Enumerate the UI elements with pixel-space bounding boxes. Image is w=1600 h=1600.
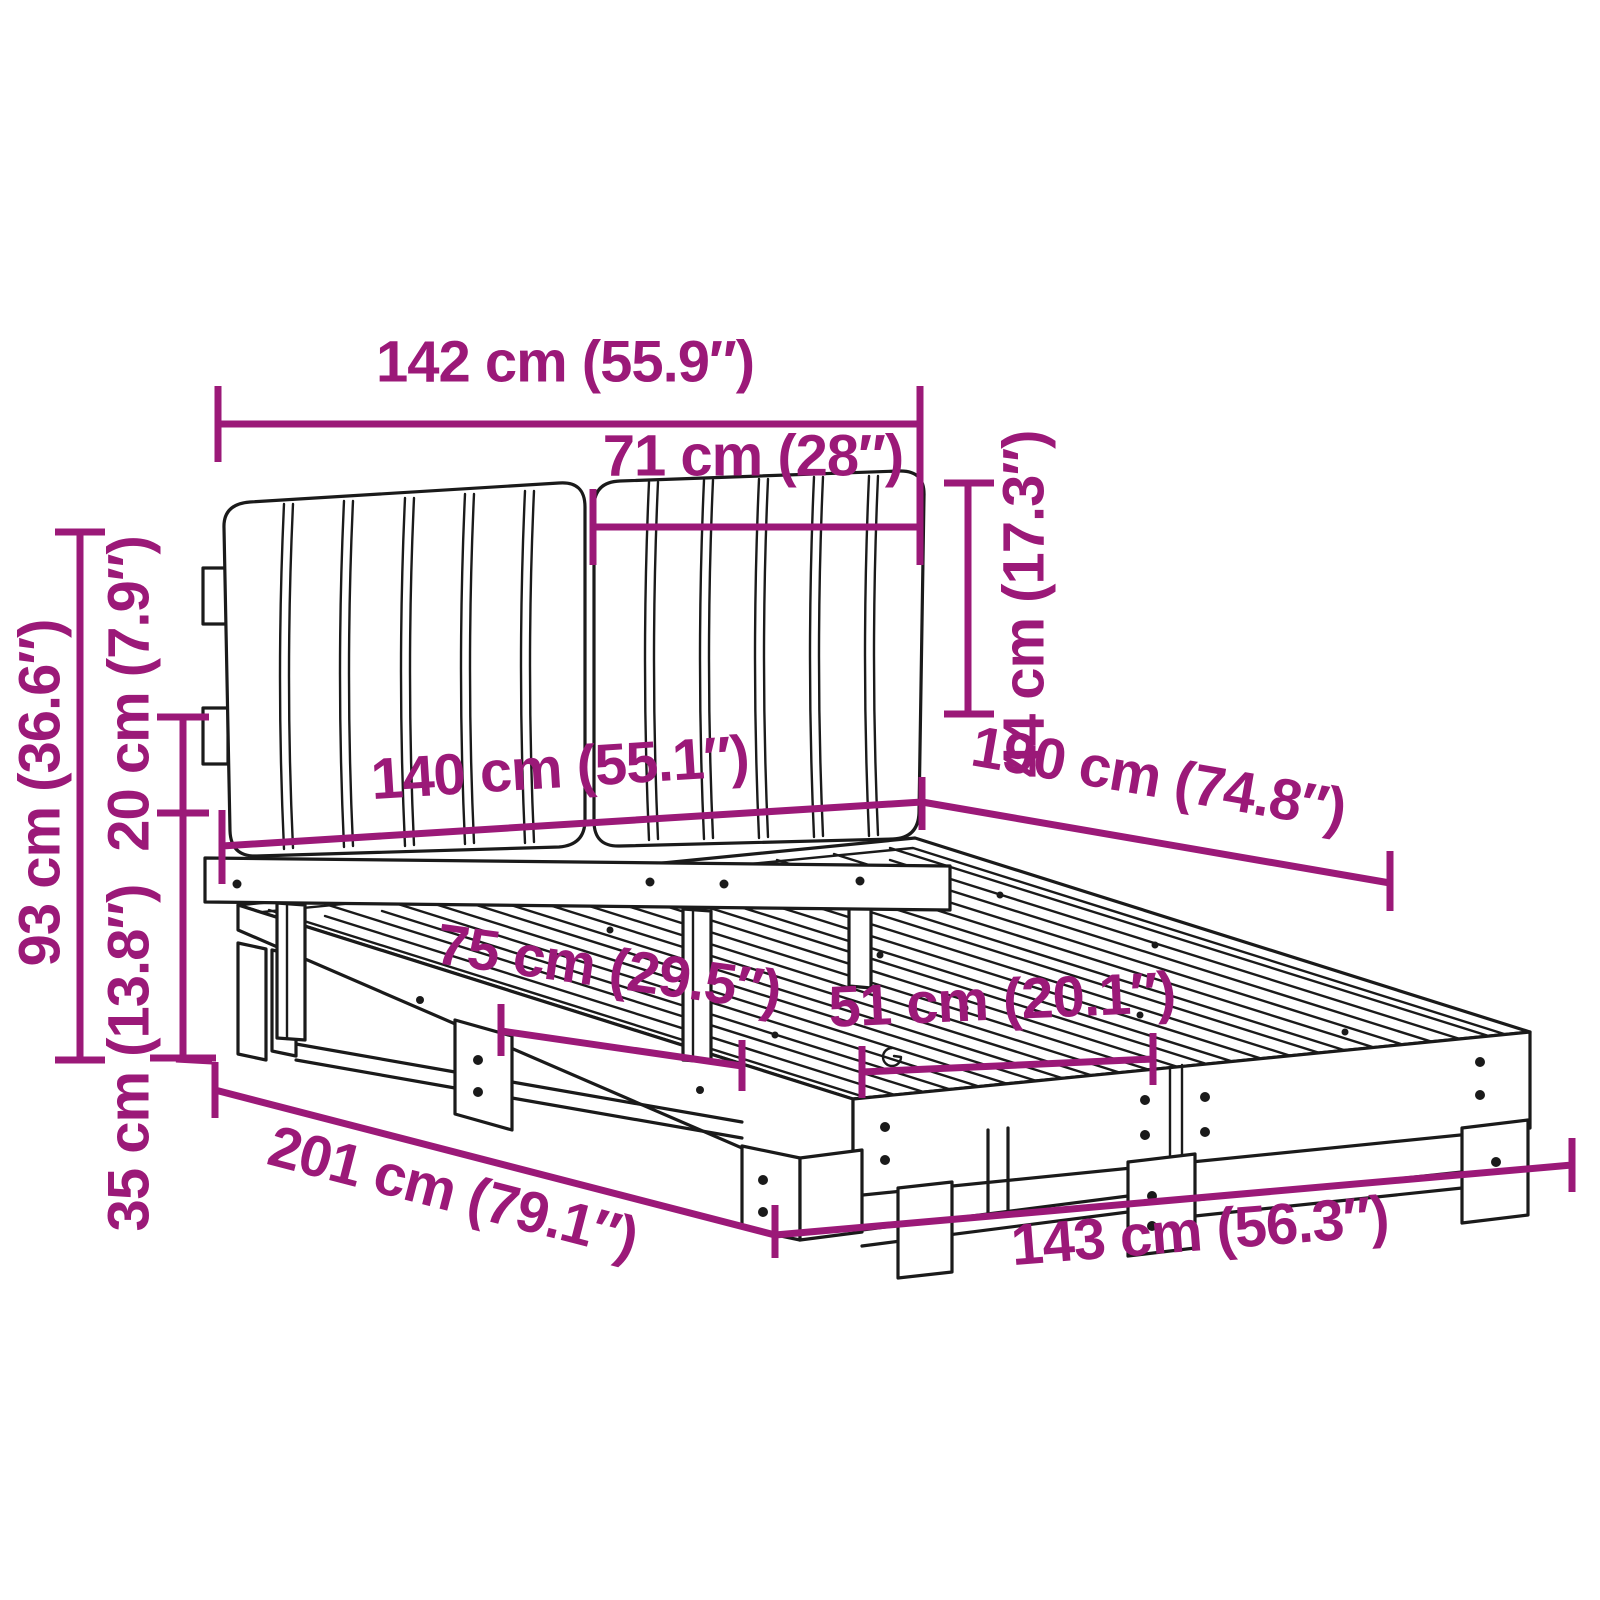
bed-dimension-diagram: 142 cm (55.9″) 71 cm (28″) 44 cm (17.3″)… xyxy=(0,0,1600,1600)
dim-label-cushion-width: 71 cm (28″) xyxy=(603,423,904,488)
dim-label-total-width: 143 cm (56.3″) xyxy=(1009,1184,1391,1278)
dim-label-frame-height: 35 cm (13.8″) xyxy=(96,885,161,1232)
dim-label-headboard-height: 93 cm (36.6″) xyxy=(7,620,72,967)
dimension-headboard-height: 93 cm (36.6″) xyxy=(7,532,105,1060)
dim-label-total-length: 201 cm (79.1″) xyxy=(262,1113,644,1271)
dim-label-rail-gap-height: 20 cm (7.9″) xyxy=(96,536,161,852)
diagram-stage: 142 cm (55.9″) 71 cm (28″) 44 cm (17.3″)… xyxy=(0,0,1600,1600)
headboard-rail xyxy=(205,858,950,910)
dimension-frame-height: 35 cm (13.8″) xyxy=(96,885,161,1232)
dim-label-headboard-width: 142 cm (55.9″) xyxy=(376,329,754,394)
